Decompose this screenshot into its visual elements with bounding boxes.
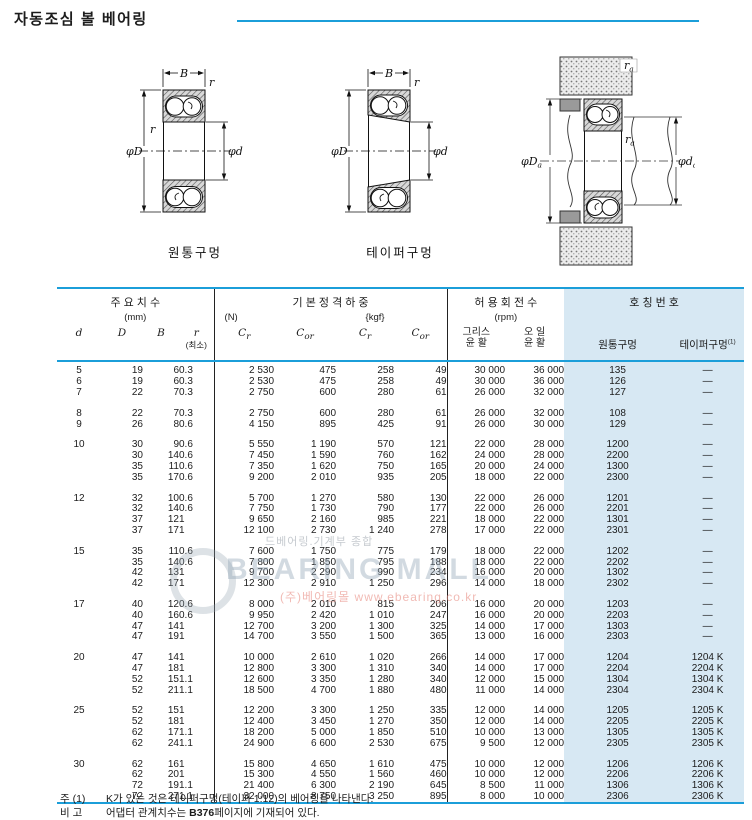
table-cell: 7 [143,408,179,419]
table-cell: 645 [394,781,447,792]
table-cell: 14 000 [505,706,564,717]
table-cell: 1306 K [671,781,744,792]
table-cell: 1 [179,621,214,632]
table-cell: 580 [336,493,394,504]
table-cell: 1 310 [336,664,394,675]
table-row: 92680.64 1508954259126 00030 000129— [57,419,744,430]
table-cell: 47 [101,621,143,632]
table-cell: 1 250 [336,579,394,590]
table-cell: 0.6 [179,493,214,504]
table-cell: 24 000 [447,451,505,462]
table-cell: 14 [143,653,179,664]
table-cell: — [671,515,744,526]
table-cell [57,664,101,675]
col-head-oil: 오 일 윤 활 [505,324,564,361]
table-cell: 42 [101,579,143,590]
table-cell: 325 [394,621,447,632]
table-cell: — [671,419,744,430]
table-row: 306216115 8004 6501 61047510 00012 00012… [57,759,744,770]
table-cell: 17 000 [505,653,564,664]
table-cell: 20 000 [447,462,505,473]
table-cell: 10 000 [214,653,274,664]
table-cell: 0.6 [179,600,214,611]
table-cell: 32 000 [505,408,564,419]
table-cell: 91 [394,419,447,430]
table-cell: 0.6 [179,546,214,557]
table-cell: 15 800 [214,759,274,770]
table-cell: 365 [394,632,447,643]
table-cell: 15 [57,546,101,557]
table-cell: 20 000 [505,610,564,621]
spec-table: 주 요 치 수 (mm) 기 본 정 격 하 중 (N) {kgf} 허 용 회… [57,289,744,802]
dim-label-housing-dia: φDa [521,155,542,170]
table-cell: 280 [336,388,394,399]
table-cell: — [671,504,744,515]
table-cell: 5 550 [214,440,274,451]
table-cell: 14 [143,621,179,632]
group-spacer [57,696,744,706]
table-cell: 2 530 [336,738,394,749]
table-cell: — [671,472,744,483]
table-cell: 2 530 [214,377,274,388]
table-cell: 0.6 [179,504,214,515]
table-cell: 1206 K [671,759,744,770]
dim-label-shaft-dia: φda [678,155,695,170]
table-cell: 16 [143,759,179,770]
table-cell: 7 450 [214,451,274,462]
table-row: 421319 7002 29099023416 00020 0001302— [57,568,744,579]
table-cell: 2304 K [671,685,744,696]
table-cell: 3 350 [274,674,336,685]
table-cell: 17 [57,600,101,611]
table-cell: 1305 [564,728,671,739]
table-cell: 22 [101,408,143,419]
table-cell: 30 [57,759,101,770]
table-cell: 2 010 [274,600,336,611]
header-main-dimensions: 주 요 치 수 (mm) [57,289,214,324]
table-cell: 18 000 [447,546,505,557]
table-cell: 61 [394,388,447,399]
table-cell: 1 020 [336,653,394,664]
table-cell: 296 [394,579,447,590]
table-cell: 1300 [564,462,671,473]
table-cell: 26 000 [505,493,564,504]
table-cell: 26 000 [447,408,505,419]
table-cell: — [671,621,744,632]
table-cell: 108 [564,408,671,419]
dim-label-ra-shaft: ra [625,133,635,148]
table-cell: 258 [336,377,394,388]
table-cell: 13 000 [447,632,505,643]
table-cell: 3 450 [274,717,336,728]
table-cell: 15 300 [214,770,274,781]
table-row: 103090.65 5501 19057012122 00028 0001200… [57,440,744,451]
table-cell: 10 000 [505,792,564,803]
table-cell: 2306 K [671,792,744,803]
table-cell: 1306 [564,781,671,792]
table-cell: 1201 [564,493,671,504]
table-cell: 10 000 [447,759,505,770]
table-cell: 895 [274,419,336,430]
table-cell: 1.1 [179,685,214,696]
header-basic-load-rating: 기 본 정 격 하 중 (N) {kgf} [214,289,447,324]
table-cell: 12 700 [214,621,274,632]
table-cell: 2305 K [671,738,744,749]
table-cell: 1 270 [336,717,394,728]
table-row: 82270.32 7506002806126 00032 000108— [57,408,744,419]
table-cell: 8 [57,408,101,419]
table-cell: 14 700 [214,632,274,643]
table-cell: 895 [394,792,447,803]
table-cell: 62 [101,738,143,749]
table-cell: 12 200 [214,706,274,717]
table-row: 1535110.67 6001 75077517918 00022 000120… [57,546,744,557]
table-cell: 11 000 [447,685,505,696]
table-cell: 30 [101,451,143,462]
table-cell: 425 [336,419,394,430]
footnote-1-text: K가 있는 것은 테이퍼구멍(테이퍼 1:12)의 베어링을 나타낸다. [106,793,373,807]
table-cell: 2206 [564,770,671,781]
table-cell: 17 [143,728,179,739]
table-cell: 47 [101,632,143,643]
table-cell [57,526,101,537]
footnote-2-text: 어댑터 관계치수는 B376페이지에 기재되어 있다. [106,807,320,820]
table-cell [57,568,101,579]
table-cell: — [671,600,744,611]
table-cell: 340 [394,674,447,685]
table-row: 5218112 4003 4501 27035012 00014 0002205… [57,717,744,728]
table-cell: 9 [57,419,101,430]
table-cell: 0.6 [179,451,214,462]
table-cell: 2206 K [671,770,744,781]
table-cell: 22 000 [447,504,505,515]
table-row: 61960.32 5304752584930 00036 000126— [57,377,744,388]
table-cell: 7 600 [214,546,274,557]
table-row: 371219 6502 16098522118 00022 0001301— [57,515,744,526]
table-cell: 4 550 [274,770,336,781]
table-cell: 335 [394,706,447,717]
table-cell: 2 530 [214,366,274,377]
table-cell: 760 [336,451,394,462]
table-cell: 22 [101,388,143,399]
table-cell: 5 [57,366,101,377]
col-head-d: d [57,324,101,361]
table-cell: 15 [143,706,179,717]
table-cell: 20 000 [505,600,564,611]
table-row: 4719114 7003 5501 50036513 00016 0002303… [57,632,744,643]
table-cell: 25 [57,706,101,717]
table-cell: 16 000 [447,600,505,611]
table-cell: — [671,451,744,462]
table-cell: 129 [564,419,671,430]
table-cell [57,451,101,462]
table-cell: 0.6 [179,610,214,621]
table-cell: 62 [101,759,143,770]
table-cell: 8 [143,419,179,430]
page-title: 자동조심 볼 베어링 [14,8,148,29]
table-cell: 16 000 [447,610,505,621]
table-cell: 1 590 [274,451,336,462]
table-cell: 36 000 [505,377,564,388]
table-cell: — [671,579,744,590]
table-cell: 206 [394,600,447,611]
table-cell: 2203 [564,610,671,621]
table-cell: 1 250 [336,706,394,717]
table-cell: 1 [179,770,214,781]
table-cell: 0.6 [179,462,214,473]
table-cell [57,685,101,696]
table-cell: 19 [101,366,143,377]
table-cell: 19 [101,377,143,388]
table-cell: 126 [564,377,671,388]
table-cell: 22 000 [505,515,564,526]
table-cell: 4 700 [274,685,336,696]
table-cell: 12 [143,515,179,526]
table-cell: 475 [394,759,447,770]
table-cell: 675 [394,738,447,749]
table-cell: 3 300 [274,706,336,717]
table-cell: 5 700 [214,493,274,504]
table-cell: 10 000 [447,728,505,739]
table-cell: 35 [101,472,143,483]
table-row: 6220115 3004 5501 56046010 00012 0002206… [57,770,744,781]
table-cell: 47 [101,653,143,664]
table-cell [57,579,101,590]
table-cell [57,738,101,749]
table-cell: 2 610 [274,653,336,664]
table-cell: 1 500 [336,632,394,643]
table-cell: 35 [101,462,143,473]
title-divider [237,20,699,22]
table-cell: 2 290 [274,568,336,579]
table-cell: 340 [394,664,447,675]
table-cell: 32 [101,504,143,515]
table-cell: — [671,568,744,579]
table-cell [57,728,101,739]
table-cell: 234 [394,568,447,579]
table-cell: 2 730 [274,526,336,537]
table-row: 1740120.68 0002 01081520616 00020 000120… [57,600,744,611]
table-cell: 1 [179,632,214,643]
table-cell: 30 000 [447,366,505,377]
footnote-1: 주 (1) K가 있는 것은 테이퍼구멍(테이퍼 1:12)의 베어링을 나타낸… [60,793,373,807]
table-cell: 1 850 [336,728,394,739]
col-head-cor-kgf: Cor [394,324,447,361]
dim-label-width: B [179,67,188,80]
table-cell: 0.6 [179,440,214,451]
table-cell: 62 [101,770,143,781]
table-cell: 24 000 [505,462,564,473]
table-cell: — [671,526,744,537]
unit-kgf: {kgf} [366,312,385,323]
footnote-2: 비 고 어댑터 관계치수는 B376페이지에 기재되어 있다. [60,807,373,820]
table-cell: 12 300 [214,579,274,590]
table-cell: 12 400 [214,717,274,728]
table-cell: 1 [179,664,214,675]
dim-label-r-top: r [414,76,420,89]
dim-label-r-side: r [150,123,156,136]
table-cell: 179 [394,546,447,557]
table-cell: 2 190 [336,781,394,792]
table-cell: 9 700 [214,568,274,579]
table-cell: 1305 K [671,728,744,739]
table-cell: 1200 [564,440,671,451]
table-cell: 18 000 [447,557,505,568]
table-cell: 935 [336,472,394,483]
table-cell: 61 [394,408,447,419]
table-cell: 18 [143,664,179,675]
table-cell: 815 [336,600,394,611]
caption-tapered-bore: 테이퍼구멍 [330,242,470,261]
table-cell: 16 000 [505,632,564,643]
catalog-page: { "page": { "title": "자동조심 볼 베어링" }, "di… [0,0,752,820]
table-cell: 14 [143,557,179,568]
table-cell: 12 000 [505,770,564,781]
table-cell: 14 [143,451,179,462]
table-cell [57,472,101,483]
table-cell: 30 000 [447,377,505,388]
table-cell: 2204 [564,664,671,675]
table-cell: — [671,462,744,473]
table-cell: — [671,493,744,504]
table-cell: 12 000 [505,759,564,770]
table-cell: 20 [57,653,101,664]
table-cell: 0.3 [179,408,214,419]
table-cell: 1 620 [274,462,336,473]
table-cell: 1205 [564,706,671,717]
table-cell: 17 [143,579,179,590]
table-cell: 7 [57,388,101,399]
col-head-grease: 그리스 윤 활 [447,324,505,361]
table-cell: 266 [394,653,447,664]
table-cell: 600 [274,388,336,399]
col-head-B: B [143,324,179,361]
table-row: 1232100.65 7001 27058013022 00026 000120… [57,493,744,504]
table-cell: 1 240 [336,526,394,537]
table-cell [57,504,101,515]
table-cell: 1302 [564,568,671,579]
group-spacer [57,749,744,759]
table-cell: 28 000 [505,440,564,451]
col-head-D: D [101,324,143,361]
table-cell: 188 [394,557,447,568]
table-row: 62171.118 2005 0001 85051010 00013 00013… [57,728,744,739]
table-cell: 0.3 [179,388,214,399]
table-cell: 6 [143,377,179,388]
table-cell: 22 000 [505,557,564,568]
spec-table-wrap: 주 요 치 수 (mm) 기 본 정 격 하 중 (N) {kgf} 허 용 회… [57,287,744,804]
table-cell: 21 400 [214,781,274,792]
table-cell: — [671,440,744,451]
table-cell: 22 000 [505,526,564,537]
table-cell [57,462,101,473]
table-cell: 1204 K [671,653,744,664]
table-cell: 6 [143,366,179,377]
table-cell: 7 800 [214,557,274,568]
table-cell: 1 610 [336,759,394,770]
table-cell: 1 [179,759,214,770]
table-cell: — [671,546,744,557]
table-cell: 14 000 [447,664,505,675]
table-cell: 1 850 [274,557,336,568]
table-cell: 460 [394,770,447,781]
table-cell: 72 [101,781,143,792]
header-bearing-number: 호 칭 번 호 [564,289,744,324]
table-cell: 3 300 [274,664,336,675]
table-row: 4714112 7003 2001 30032514 00017 0001303… [57,621,744,632]
table-cell: 985 [336,515,394,526]
table-cell: 162 [394,451,447,462]
table-cell: 1 [179,515,214,526]
table-cell: 17 000 [505,621,564,632]
table-cell: 0.3 [179,366,214,377]
bearing-diagram-tapered-bore: B r φD φd [330,60,470,242]
table-cell: 18 000 [447,472,505,483]
dim-label-bore-dia: φd [433,145,448,158]
table-cell: 1 [179,526,214,537]
table-cell: 42 [101,568,143,579]
col-head-cor-n: Cor [274,324,336,361]
dim-label-outer-dia: φD [331,145,348,158]
table-cell: 1206 [564,759,671,770]
table-row: 52211.118 5004 7001 88048011 00014 00023… [57,685,744,696]
dim-label-outer-dia: φD [126,145,143,158]
table-row: 30140.67 4501 59076016224 00028 0002200— [57,451,744,462]
table-cell: 16 [143,610,179,621]
table-row: 4217112 3002 9101 25029614 00018 0002302… [57,579,744,590]
table-cell: 14 000 [447,579,505,590]
table-row: 51960.32 5304752584930 00036 000135— [57,366,744,377]
table-cell: 3 200 [274,621,336,632]
table-cell: 1 [179,568,214,579]
table-cell: — [671,557,744,568]
table-cell: 0.6 [179,419,214,430]
table-cell: 14 000 [505,685,564,696]
table-cell: 14 [143,504,179,515]
table-cell: 15 000 [505,674,564,685]
group-spacer [57,430,744,440]
table-cell: 47 [101,664,143,675]
table-cell: 11 [143,546,179,557]
table-cell: 52 [101,706,143,717]
bearing-diagram-mounted: ra ra φDa φda [520,55,695,267]
table-cell: 7 750 [214,504,274,515]
footnotes: 주 (1) K가 있는 것은 테이퍼구멍(테이퍼 1:12)의 베어링을 나타낸… [60,793,373,820]
table-cell: 37 [101,526,143,537]
table-cell: 26 000 [505,504,564,515]
table-cell: 2303 [564,632,671,643]
table-cell: 30 [101,440,143,451]
dim-label-r-top: r [209,76,215,89]
header-limiting-speed: 허 용 회 전 수 (rpm) [447,289,564,324]
table-cell: 280 [336,408,394,419]
table-cell: 19 [143,781,179,792]
table-cell: 1.1 [179,781,214,792]
table-cell: 26 000 [447,388,505,399]
table-cell: 14 000 [447,653,505,664]
table-cell: 22 000 [505,546,564,557]
table-cell: 9 650 [214,515,274,526]
table-cell: 790 [336,504,394,515]
table-cell: 3 550 [274,632,336,643]
table-cell [57,557,101,568]
table-cell: 40 [101,600,143,611]
table-cell: 35 [101,546,143,557]
table-cell: 52 [101,717,143,728]
table-cell: 2205 [564,717,671,728]
table-row: 3717112 1002 7301 24027817 00022 0002301… [57,526,744,537]
table-cell: 2302 [564,579,671,590]
